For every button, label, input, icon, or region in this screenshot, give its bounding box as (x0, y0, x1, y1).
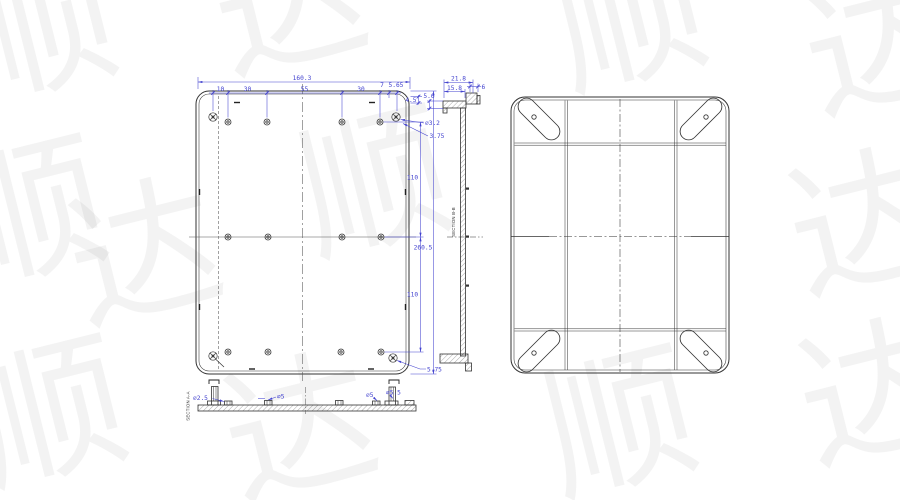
section-bb-label: SECTION B-B (451, 207, 456, 237)
section-view-aa: SECTION A-A (186, 387, 417, 421)
dim-step: 5.6 (423, 93, 434, 100)
dim-right-boss-dia: ∅5 (366, 392, 374, 399)
dim-chain-30a: 30 (244, 86, 252, 93)
dim-row-lower: 110 (407, 292, 418, 299)
drawing-canvas: 160.3 10 30 55 30 7 5.65 4.5 (0, 0, 900, 500)
section-aa-dimensions: ∅2.5 ∅5 ∅5 ∅5.5 (193, 390, 401, 403)
section-aa-label: SECTION A-A (186, 391, 191, 420)
center-lines (189, 84, 416, 381)
back-view (511, 95, 729, 376)
dim-row-upper: 110 (407, 175, 418, 182)
dim-total-width: 160.3 (293, 75, 312, 82)
dim-right-post-dia: ∅5.5 (386, 390, 401, 397)
section-cut-marks (209, 380, 399, 384)
section-view-bb: SECTION B-B (440, 93, 483, 371)
dim-screw-offset: 5.75 (427, 367, 442, 374)
dim-chain-7: 7 (380, 82, 384, 89)
drawing-sheet: 顺 达 顺 达 顺 达 顺 达 顺 达 顺 达 (0, 0, 900, 500)
dim-chain-55: 55 (301, 86, 309, 93)
dim-corner-offset: 4.5 (405, 97, 416, 104)
dim-post-dia: ∅2.5 (193, 395, 208, 402)
dim-chain-30b: 30 (357, 86, 365, 93)
dim-flange-id: 15.8 (447, 85, 462, 92)
dim-height-overall: 260.5 (414, 245, 433, 252)
dim-boss-dia: ∅5 (277, 394, 285, 401)
dim-chain-565: 5.65 (389, 82, 404, 89)
dim-flange-od: 21.8 (451, 76, 466, 83)
dim-hole-offset: 3.75 (430, 133, 445, 140)
front-view (189, 84, 416, 384)
dim-lip: 6 (482, 84, 486, 91)
dim-hole-dia: ∅3.2 (425, 120, 440, 127)
screw-symbols (209, 113, 400, 367)
dim-chain-10: 10 (217, 86, 225, 93)
front-view-dimensions: 160.3 10 30 55 30 7 5.65 4.5 (198, 75, 445, 374)
